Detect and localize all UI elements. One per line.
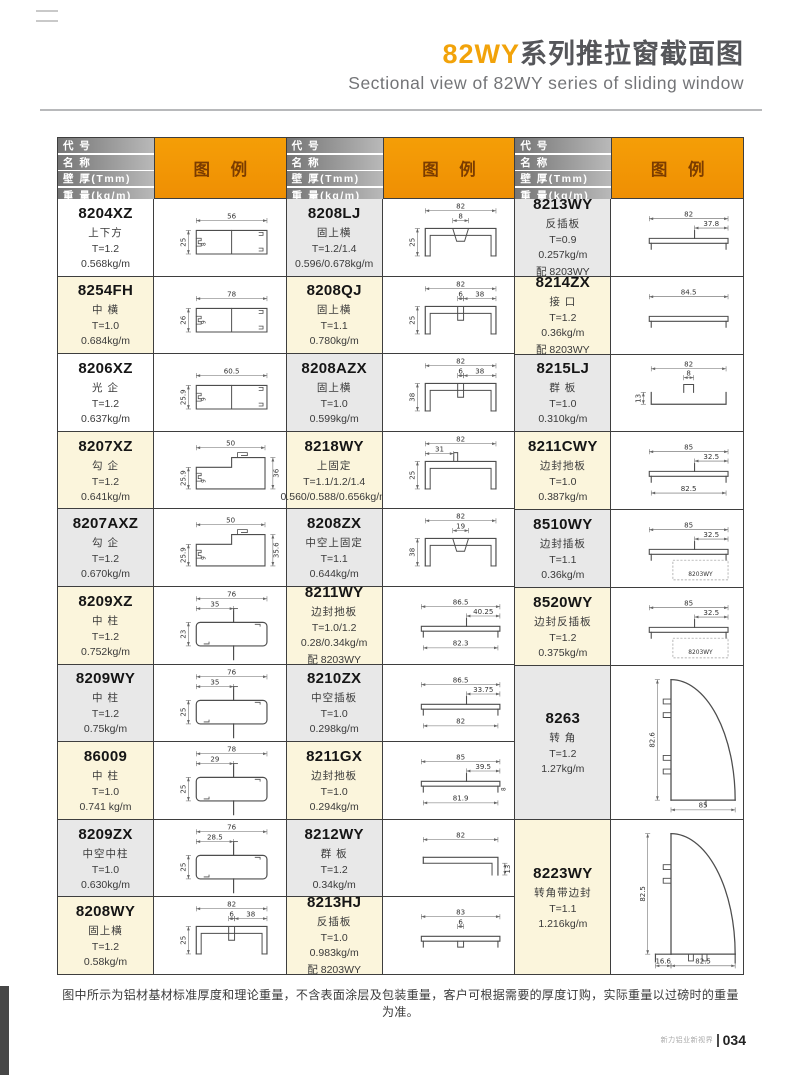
- profile-weight: 0.36kg/m: [541, 327, 584, 339]
- profile-diagram-cell: 823125: [383, 432, 515, 509]
- svg-text:32.5: 32.5: [704, 452, 720, 461]
- svg-text:32.5: 32.5: [704, 608, 720, 617]
- profile-section-diagram: 82813: [611, 355, 743, 432]
- profile-info-cell: 8208QJ 固上横 T=1.1 0.780kg/m: [287, 277, 383, 354]
- table-row: 8212WY 群 板 T=1.2 0.34kg/m 8213: [287, 820, 515, 898]
- profile-code: 8218WY: [305, 438, 364, 455]
- table-row: 8204XZ 上下方 T=1.2 0.568kg/m 56258: [58, 199, 286, 277]
- svg-text:78: 78: [227, 745, 236, 754]
- profile-code: 8263: [546, 710, 581, 727]
- svg-text:32.5: 32.5: [704, 530, 720, 539]
- profile-name: 固上横: [317, 380, 352, 395]
- profile-code: 8213WY: [533, 196, 592, 213]
- profile-diagram-cell: 8263825: [383, 277, 515, 354]
- catalog-page: 82WY系列推拉窗截面图 Sectional view of 82WY seri…: [0, 0, 800, 1075]
- profile-code: 8254FH: [78, 282, 133, 299]
- rows-column-1: 8204XZ 上下方 T=1.2 0.568kg/m 56258 8254FH …: [58, 199, 286, 974]
- table-row: 8208WY 固上横 T=1.2 0.58kg/m 8263825: [58, 897, 286, 974]
- profile-weight: 0.34kg/m: [313, 879, 356, 891]
- table-row: 8510WY 边封插板 T=1.1 0.36kg/m 8532.58203WY: [515, 510, 743, 588]
- profile-weight: 0.310kg/m: [538, 413, 587, 425]
- profile-section-diagram: 836: [383, 897, 515, 974]
- table-row: 8207AXZ 勾 企 T=1.2 0.670kg/m 5025.9935.6: [58, 509, 286, 587]
- table-row: 8211GX 边封扡板 T=1.0 0.294kg/m 8539.581.98: [287, 742, 515, 820]
- profile-weight: 0.294kg/m: [310, 801, 359, 813]
- svg-text:76: 76: [227, 590, 236, 599]
- profile-name: 固上横: [317, 302, 352, 317]
- header-legend-label: 图 例: [384, 138, 515, 198]
- profile-thickness: T=1.0: [92, 786, 119, 798]
- profile-info-cell: 8208ZX 中空上固定 T=1.1 0.644kg/m: [287, 509, 383, 586]
- profile-diagram-cell: 82.516.682.5: [611, 820, 743, 974]
- profile-weight: 0.257kg/m: [538, 249, 587, 261]
- profile-diagram-cell: 8263838: [383, 354, 515, 431]
- profile-section-diagram: 60.525.99: [154, 354, 286, 431]
- profile-diagram-cell: 86.540.2582.3: [383, 587, 515, 664]
- profile-info-cell: 86009 中 柱 T=1.0 0.741 kg/m: [58, 742, 154, 819]
- svg-text:31: 31: [435, 444, 444, 453]
- info-header: 代 号 名 称 壁 厚(Tmm) 重 量(kg/m): [515, 138, 612, 198]
- profile-diagram-cell: 84.5: [611, 277, 743, 354]
- table-column-group-1: 代 号 名 称 壁 厚(Tmm) 重 量(kg/m) 图 例 8204XZ 上下…: [58, 138, 287, 974]
- svg-text:25.9: 25.9: [179, 390, 188, 406]
- svg-text:25: 25: [179, 785, 188, 794]
- svg-text:81.9: 81.9: [452, 794, 468, 803]
- profile-weight: 1.216kg/m: [538, 918, 587, 930]
- profile-name: 勾 企: [92, 535, 119, 550]
- series-code: 82WY: [442, 39, 520, 69]
- profile-thickness: T=1.2: [549, 748, 576, 760]
- table-column-group-3: 代 号 名 称 壁 厚(Tmm) 重 量(kg/m) 图 例 8213WY 反插…: [515, 138, 743, 974]
- svg-text:82: 82: [684, 210, 693, 219]
- svg-text:85: 85: [699, 802, 708, 810]
- profile-info-cell: 8213WY 反插板 T=0.9 0.257kg/m 配 8203WY: [515, 199, 611, 276]
- profile-thickness: T=1.2: [92, 708, 119, 720]
- profile-section-diagram: 5025.9936: [154, 432, 286, 509]
- profile-section-diagram: 8237.8: [611, 199, 743, 276]
- svg-text:8: 8: [458, 211, 463, 220]
- profile-info-cell: 8213HJ 反插板 T=1.0 0.983kg/m 配 8203WY: [287, 897, 383, 974]
- svg-text:82: 82: [456, 830, 465, 839]
- profile-weight: 0.684kg/m: [81, 335, 130, 347]
- profile-diagram-cell: 782925: [154, 742, 286, 819]
- svg-text:6: 6: [458, 918, 463, 927]
- profile-name: 边封扡板: [540, 458, 586, 473]
- profile-diagram-cell: 82.685: [611, 666, 743, 820]
- header-legend-label: 图 例: [612, 138, 743, 198]
- profile-section-diagram: 82825: [383, 199, 515, 276]
- svg-text:82: 82: [456, 512, 465, 521]
- profile-weight: 1.27kg/m: [541, 763, 584, 775]
- svg-text:82: 82: [456, 434, 465, 443]
- profile-name: 边封插板: [540, 536, 586, 551]
- rows-column-2: 8208LJ 固上横 T=1.2/1.4 0.596/0.678kg/m 828…: [287, 199, 515, 974]
- table-row: 8223WY 转角带边封 T=1.1 1.216kg/m 82.516.682.…: [515, 820, 743, 974]
- profile-info-cell: 8212WY 群 板 T=1.2 0.34kg/m: [287, 820, 383, 897]
- profile-diagram-cell: 56258: [154, 199, 286, 276]
- svg-text:82: 82: [456, 716, 465, 725]
- svg-text:6: 6: [229, 910, 234, 919]
- profile-diagram-cell: 78269: [154, 277, 286, 354]
- table-row: 8208LJ 固上横 T=1.2/1.4 0.596/0.678kg/m 828…: [287, 199, 515, 277]
- svg-text:8: 8: [202, 242, 208, 246]
- footer-brand: 新力铝业新视界: [661, 1035, 714, 1045]
- table-row: 8214ZX 接 口 T=1.2 0.36kg/m 配 8203WY 84.5: [515, 277, 743, 355]
- profile-weight: 0.36kg/m: [541, 569, 584, 581]
- profile-name: 上下方: [88, 225, 123, 240]
- profile-code: 8211GX: [306, 748, 362, 765]
- header-thickness-label: 壁 厚(Tmm): [287, 171, 383, 186]
- svg-text:25.9: 25.9: [179, 470, 188, 486]
- profile-code: 8215LJ: [537, 360, 590, 377]
- profile-section-diagram: 8532.58203WY: [611, 588, 743, 665]
- profile-info-cell: 8206XZ 光 企 T=1.2 0.637kg/m: [58, 354, 154, 431]
- header-name-label: 名 称: [515, 155, 611, 170]
- svg-text:82.5: 82.5: [681, 484, 697, 493]
- svg-text:39.5: 39.5: [475, 762, 491, 771]
- svg-text:35.6: 35.6: [271, 542, 280, 558]
- svg-text:25: 25: [407, 238, 416, 247]
- profile-weight: 0.644kg/m: [310, 568, 359, 580]
- svg-text:16.6: 16.6: [656, 958, 672, 966]
- table-column-group-2: 代 号 名 称 壁 厚(Tmm) 重 量(kg/m) 图 例 8208LJ 固上…: [287, 138, 516, 974]
- profile-weight: 0.375kg/m: [538, 647, 587, 659]
- svg-text:82: 82: [456, 279, 465, 288]
- profile-name: 中 柱: [92, 613, 119, 628]
- profile-section-diagram: 5025.9935.6: [154, 509, 286, 586]
- svg-text:13: 13: [634, 393, 643, 402]
- table-row: 8208QJ 固上横 T=1.1 0.780kg/m 8263825: [287, 277, 515, 355]
- profile-name: 中 柱: [92, 690, 119, 705]
- svg-text:82.3: 82.3: [452, 639, 468, 648]
- profile-code: 8213HJ: [307, 894, 361, 911]
- rows-column-3: 8213WY 反插板 T=0.9 0.257kg/m 配 8203WY 8237…: [515, 199, 743, 974]
- profile-thickness: T=1.0: [321, 398, 348, 410]
- profile-diagram-cell: 86.533.7582: [383, 665, 515, 742]
- profile-thickness: T=1.1: [549, 903, 576, 915]
- profile-thickness: T=1.1: [549, 554, 576, 566]
- profile-weight: 0.983kg/m: [310, 947, 359, 959]
- info-header: 代 号 名 称 壁 厚(Tmm) 重 量(kg/m): [287, 138, 384, 198]
- svg-text:50: 50: [226, 438, 235, 447]
- profile-code: 8208QJ: [307, 282, 362, 299]
- profile-code: 8211WY: [305, 584, 364, 601]
- profile-name: 上固定: [317, 458, 352, 473]
- footnote: 图中所示为铝材基材标准厚度和理论重量，不含表面涂层及包装重量，客户可根据需要的厚…: [57, 986, 744, 1020]
- profile-thickness: T=1.2: [549, 312, 576, 324]
- svg-text:13: 13: [503, 864, 512, 873]
- svg-text:26: 26: [179, 315, 188, 324]
- profile-weight: 0.741 kg/m: [80, 801, 132, 813]
- profile-thickness: T=1.2: [92, 476, 119, 488]
- profile-diagram-cell: 836: [383, 897, 515, 974]
- svg-text:60.5: 60.5: [224, 367, 240, 376]
- svg-text:56: 56: [227, 211, 236, 220]
- profile-section-diagram: 8263825: [154, 897, 286, 974]
- profile-section-diagram: 82.516.682.5: [611, 820, 743, 974]
- svg-text:38: 38: [407, 392, 416, 401]
- table-row: 8209ZX 中空中柱 T=1.0 0.630kg/m 7628.525: [58, 820, 286, 898]
- profile-weight: 0.630kg/m: [81, 879, 130, 891]
- header-thickness-label: 壁 厚(Tmm): [58, 171, 154, 186]
- profile-name: 中 柱: [92, 768, 119, 783]
- header-legend-label: 图 例: [155, 138, 286, 198]
- svg-text:35: 35: [210, 599, 219, 608]
- profile-info-cell: 8204XZ 上下方 T=1.2 0.568kg/m: [58, 199, 154, 276]
- profile-name: 光 企: [92, 380, 119, 395]
- svg-text:78: 78: [227, 289, 236, 298]
- profile-code: 8209ZX: [78, 826, 132, 843]
- svg-text:8: 8: [501, 787, 507, 791]
- profile-info-cell: 8209WY 中 柱 T=1.2 0.75kg/m: [58, 665, 154, 742]
- group-header: 代 号 名 称 壁 厚(Tmm) 重 量(kg/m) 图 例: [287, 138, 515, 199]
- profile-section-diagram: 82.685: [611, 666, 743, 820]
- profile-code: 8209XZ: [78, 593, 132, 610]
- profile-info-cell: 8208AZX 固上横 T=1.0 0.599kg/m: [287, 354, 383, 431]
- profile-thickness: T=1.2: [92, 553, 119, 565]
- group-header: 代 号 名 称 壁 厚(Tmm) 重 量(kg/m) 图 例: [58, 138, 286, 199]
- svg-text:38: 38: [475, 289, 484, 298]
- svg-text:76: 76: [227, 667, 236, 676]
- table-row: 8263 转 角 T=1.2 1.27kg/m 82.685: [515, 666, 743, 821]
- profile-name: 中 横: [92, 302, 119, 317]
- profile-thickness: T=1.2: [92, 631, 119, 643]
- profile-diagram-cell: 763525: [154, 665, 286, 742]
- profile-info-cell: 8207AXZ 勾 企 T=1.2 0.670kg/m: [58, 509, 154, 586]
- svg-text:85: 85: [456, 753, 465, 762]
- profile-name: 边封反插板: [534, 614, 592, 629]
- profile-diagram-cell: 8532.58203WY: [611, 510, 743, 587]
- profile-diagram-cell: 8532.58203WY: [611, 588, 743, 665]
- profile-diagram-cell: 82813: [611, 355, 743, 432]
- svg-text:23: 23: [179, 630, 188, 639]
- profile-code: 8204XZ: [78, 205, 132, 222]
- svg-text:82: 82: [684, 359, 693, 368]
- page-title: 82WY系列推拉窗截面图: [348, 40, 744, 70]
- profile-section-diagram: 823125: [383, 432, 515, 509]
- profile-info-cell: 8223WY 转角带边封 T=1.1 1.216kg/m: [515, 820, 611, 974]
- table-row: 8213WY 反插板 T=0.9 0.257kg/m 配 8203WY 8237…: [515, 199, 743, 277]
- profile-section-diagram: 8532.58203WY: [611, 510, 743, 587]
- profile-diagram-cell: 5025.9935.6: [154, 509, 286, 586]
- svg-text:84.5: 84.5: [681, 287, 697, 296]
- svg-text:82: 82: [456, 357, 465, 366]
- profile-weight: 0.58kg/m: [84, 956, 127, 968]
- table-row: 8213HJ 反插板 T=1.0 0.983kg/m 配 8203WY 836: [287, 897, 515, 974]
- svg-text:9: 9: [202, 479, 208, 483]
- svg-text:6: 6: [458, 367, 463, 376]
- svg-text:28.5: 28.5: [207, 832, 223, 841]
- profile-thickness: T=1.0/1.2: [312, 622, 357, 634]
- page-title-text: 系列推拉窗截面图: [520, 39, 744, 69]
- profile-thickness: T=1.2/1.4: [312, 243, 357, 255]
- profile-info-cell: 8510WY 边封插板 T=1.1 0.36kg/m: [515, 510, 611, 587]
- svg-text:82.5: 82.5: [696, 958, 712, 966]
- svg-text:82.6: 82.6: [649, 732, 657, 748]
- profile-weight: 0.641kg/m: [81, 491, 130, 503]
- profile-code: 8211CWY: [528, 438, 598, 455]
- svg-text:8203WY: 8203WY: [689, 572, 714, 578]
- svg-text:82.5: 82.5: [639, 886, 647, 902]
- profile-section-diagram: 763523: [154, 587, 286, 664]
- svg-text:50: 50: [226, 516, 235, 525]
- header-name-label: 名 称: [58, 155, 154, 170]
- profile-info-cell: 8211WY 边封扡板 T=1.0/1.2 0.28/0.34kg/m 配 82…: [287, 587, 383, 664]
- table-row: 8211WY 边封扡板 T=1.0/1.2 0.28/0.34kg/m 配 82…: [287, 587, 515, 665]
- svg-text:85: 85: [684, 443, 693, 452]
- profile-name: 群 板: [321, 846, 348, 861]
- profile-code: 8520WY: [533, 594, 592, 611]
- profile-code: 8510WY: [533, 516, 592, 533]
- profile-thickness: T=0.9: [549, 234, 576, 246]
- profile-info-cell: 8254FH 中 横 T=1.0 0.684kg/m: [58, 277, 154, 354]
- profile-diagram-cell: 763523: [154, 587, 286, 664]
- svg-text:36: 36: [271, 468, 280, 477]
- table-row: 8207XZ 勾 企 T=1.2 0.641kg/m 5025.9936: [58, 432, 286, 510]
- profile-thickness: T=1.1: [321, 320, 348, 332]
- header-thickness-label: 壁 厚(Tmm): [515, 171, 611, 186]
- svg-text:25: 25: [179, 707, 188, 716]
- svg-text:25: 25: [407, 470, 416, 479]
- profile-code: 8208ZX: [307, 515, 361, 532]
- profile-code: 8223WY: [533, 865, 592, 882]
- left-edge-bar: [0, 986, 9, 1075]
- profile-diagram-cell: 82825: [383, 199, 515, 276]
- profile-weight: 0.599kg/m: [310, 413, 359, 425]
- profile-section-diagram: 84.5: [611, 277, 743, 354]
- header-name-label: 名 称: [287, 155, 383, 170]
- profile-weight: 0.75kg/m: [84, 723, 127, 735]
- profile-code: 8206XZ: [78, 360, 132, 377]
- profile-thickness: T=1.0: [92, 320, 119, 332]
- profile-thickness: T=1.0: [321, 708, 348, 720]
- profile-name: 固上横: [317, 225, 352, 240]
- profile-diagram-cell: 8539.581.98: [383, 742, 515, 819]
- profile-code: 8207XZ: [78, 438, 132, 455]
- svg-text:25: 25: [179, 862, 188, 871]
- profile-weight: 0.780kg/m: [310, 335, 359, 347]
- svg-text:82: 82: [456, 202, 465, 211]
- svg-text:86.5: 86.5: [452, 597, 468, 606]
- table-row: 8211CWY 边封扡板 T=1.0 0.387kg/m 8532.582.5: [515, 432, 743, 510]
- svg-text:38: 38: [475, 367, 484, 376]
- table-row: 8208ZX 中空上固定 T=1.1 0.644kg/m 821938: [287, 509, 515, 587]
- profile-info-cell: 8209ZX 中空中柱 T=1.0 0.630kg/m: [58, 820, 154, 897]
- profile-code: 8209WY: [76, 670, 135, 687]
- profile-weight: 0.596/0.678kg/m: [295, 258, 373, 270]
- profile-section-diagram: 78269: [154, 277, 286, 354]
- profile-code: 8207AXZ: [73, 515, 138, 532]
- profile-section-diagram: 763525: [154, 665, 286, 742]
- profile-thickness: T=1.0: [549, 476, 576, 488]
- table-row: 8210ZX 中空插板 T=1.0 0.298kg/m 86.533.7582: [287, 665, 515, 743]
- page-number: 034: [723, 1032, 746, 1048]
- table-row: 8520WY 边封反插板 T=1.2 0.375kg/m 8532.58203W…: [515, 588, 743, 666]
- profile-section-diagram: 782925: [154, 742, 286, 819]
- svg-text:25: 25: [179, 238, 188, 247]
- profile-match: 配 8203WY: [307, 962, 361, 977]
- profile-weight: 0.637kg/m: [81, 413, 130, 425]
- profile-section-diagram: 86.540.2582.3: [383, 587, 515, 664]
- profile-name: 中空中柱: [83, 846, 129, 861]
- profile-section-diagram: 821938: [383, 509, 515, 586]
- profile-code: 8212WY: [305, 826, 364, 843]
- profile-info-cell: 8210ZX 中空插板 T=1.0 0.298kg/m: [287, 665, 383, 742]
- profile-name: 群 板: [549, 380, 576, 395]
- svg-text:8203WY: 8203WY: [689, 650, 714, 656]
- profile-weight: 0.560/0.588/0.656kg/m: [280, 491, 387, 503]
- profile-name: 反插板: [317, 914, 352, 929]
- profile-section-diagram: 8263838: [383, 354, 515, 431]
- table-row: 86009 中 柱 T=1.0 0.741 kg/m 782925: [58, 742, 286, 820]
- profile-code: 8208AZX: [301, 360, 366, 377]
- profile-weight: 0.28/0.34kg/m: [301, 637, 368, 649]
- svg-text:83: 83: [456, 908, 465, 917]
- profile-diagram-cell: 60.525.99: [154, 354, 286, 431]
- profile-thickness: T=1.2: [321, 864, 348, 876]
- svg-text:86.5: 86.5: [452, 675, 468, 684]
- profile-thickness: T=1.0: [321, 786, 348, 798]
- svg-text:9: 9: [202, 556, 208, 560]
- profile-name: 边封扡板: [311, 768, 357, 783]
- profile-code: 8214ZX: [536, 274, 590, 291]
- profile-info-cell: 8263 转 角 T=1.2 1.27kg/m: [515, 666, 611, 820]
- table-row: 8209XZ 中 柱 T=1.2 0.752kg/m 763523: [58, 587, 286, 665]
- profile-section-diagram: 86.533.7582: [383, 665, 515, 742]
- svg-text:37.8: 37.8: [704, 219, 720, 228]
- profile-info-cell: 8211GX 边封扡板 T=1.0 0.294kg/m: [287, 742, 383, 819]
- profile-name: 勾 企: [92, 458, 119, 473]
- profile-thickness: T=1.2: [549, 632, 576, 644]
- profile-weight: 0.298kg/m: [310, 723, 359, 735]
- svg-text:82: 82: [227, 900, 236, 909]
- footer-divider: [717, 1034, 719, 1047]
- table-row: 8215LJ 群 板 T=1.0 0.310kg/m 82813: [515, 355, 743, 433]
- svg-text:9: 9: [202, 397, 208, 401]
- profile-info-cell: 8520WY 边封反插板 T=1.2 0.375kg/m: [515, 588, 611, 665]
- svg-text:25: 25: [407, 315, 416, 324]
- table-row: 8206XZ 光 企 T=1.2 0.637kg/m 60.525.99: [58, 354, 286, 432]
- profile-info-cell: 8215LJ 群 板 T=1.0 0.310kg/m: [515, 355, 611, 432]
- profile-name: 固上横: [88, 923, 123, 938]
- profile-section-diagram: 8539.581.98: [383, 742, 515, 819]
- table-row: 8254FH 中 横 T=1.0 0.684kg/m 78269: [58, 277, 286, 355]
- profile-section-diagram: 8263825: [383, 277, 515, 354]
- table-row: 8208AZX 固上横 T=1.0 0.599kg/m 8263838: [287, 354, 515, 432]
- profile-name: 反插板: [546, 216, 581, 231]
- svg-text:35: 35: [210, 677, 219, 686]
- svg-text:76: 76: [227, 822, 236, 831]
- profile-section-diagram: 56258: [154, 199, 286, 276]
- profile-diagram-cell: 8237.8: [611, 199, 743, 276]
- profile-info-cell: 8208WY 固上横 T=1.2 0.58kg/m: [58, 897, 154, 974]
- profile-info-cell: 8209XZ 中 柱 T=1.2 0.752kg/m: [58, 587, 154, 664]
- svg-text:40.25: 40.25: [473, 607, 493, 616]
- profile-info-cell: 8211CWY 边封扡板 T=1.0 0.387kg/m: [515, 432, 611, 509]
- table-row: 8218WY 上固定 T=1.1/1.2/1.4 0.560/0.588/0.6…: [287, 432, 515, 510]
- svg-text:25.9: 25.9: [179, 548, 188, 564]
- svg-text:33.75: 33.75: [473, 684, 493, 693]
- profile-name: 边封扡板: [311, 604, 357, 619]
- profile-diagram-cell: 821938: [383, 509, 515, 586]
- profile-section-diagram: 7628.525: [154, 820, 286, 897]
- title-block: 82WY系列推拉窗截面图 Sectional view of 82WY seri…: [348, 40, 744, 94]
- profile-name: 接 口: [549, 294, 576, 309]
- svg-text:85: 85: [684, 599, 693, 608]
- profile-diagram-cell: 5025.9936: [154, 432, 286, 509]
- profile-code: 86009: [84, 748, 127, 765]
- svg-text:8: 8: [687, 368, 692, 377]
